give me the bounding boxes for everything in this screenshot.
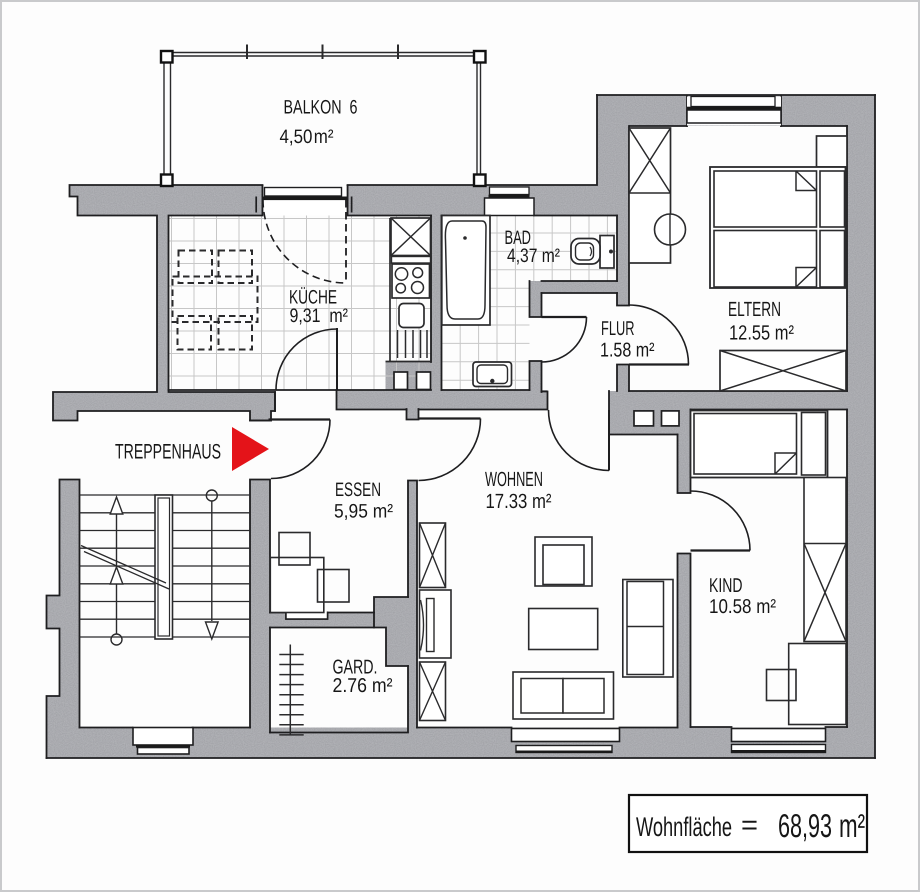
svg-text:5,95 m²: 5,95 m² bbox=[334, 501, 393, 523]
svg-text:4,37 m²: 4,37 m² bbox=[507, 245, 560, 267]
svg-text:4,50 m²: 4,50 m² bbox=[280, 126, 334, 148]
svg-text:WOHNEN: WOHNEN bbox=[485, 468, 543, 491]
svg-text:KIND: KIND bbox=[709, 575, 743, 597]
svg-text:BALKON 6: BALKON 6 bbox=[284, 97, 358, 119]
svg-text:ESSEN: ESSEN bbox=[335, 479, 381, 501]
svg-text:9,31 m²: 9,31 m² bbox=[290, 305, 349, 327]
svg-text:10.58 m²: 10.58 m² bbox=[709, 596, 776, 618]
svg-text:=: = bbox=[741, 810, 758, 840]
svg-text:FLUR: FLUR bbox=[601, 318, 635, 340]
svg-text:12.55 m²: 12.55 m² bbox=[729, 322, 794, 345]
svg-text:m²: m² bbox=[839, 807, 865, 844]
svg-text:68,93: 68,93 bbox=[778, 807, 832, 844]
svg-text:17.33 m²: 17.33 m² bbox=[486, 490, 552, 513]
svg-text:TREPPENHAUS: TREPPENHAUS bbox=[115, 441, 221, 464]
svg-text:ELTERN: ELTERN bbox=[728, 298, 781, 321]
svg-text:2.76 m²: 2.76 m² bbox=[333, 675, 393, 697]
svg-text:Wohnfläche: Wohnfläche bbox=[636, 812, 732, 842]
svg-text:1.58 m²: 1.58 m² bbox=[600, 340, 655, 362]
